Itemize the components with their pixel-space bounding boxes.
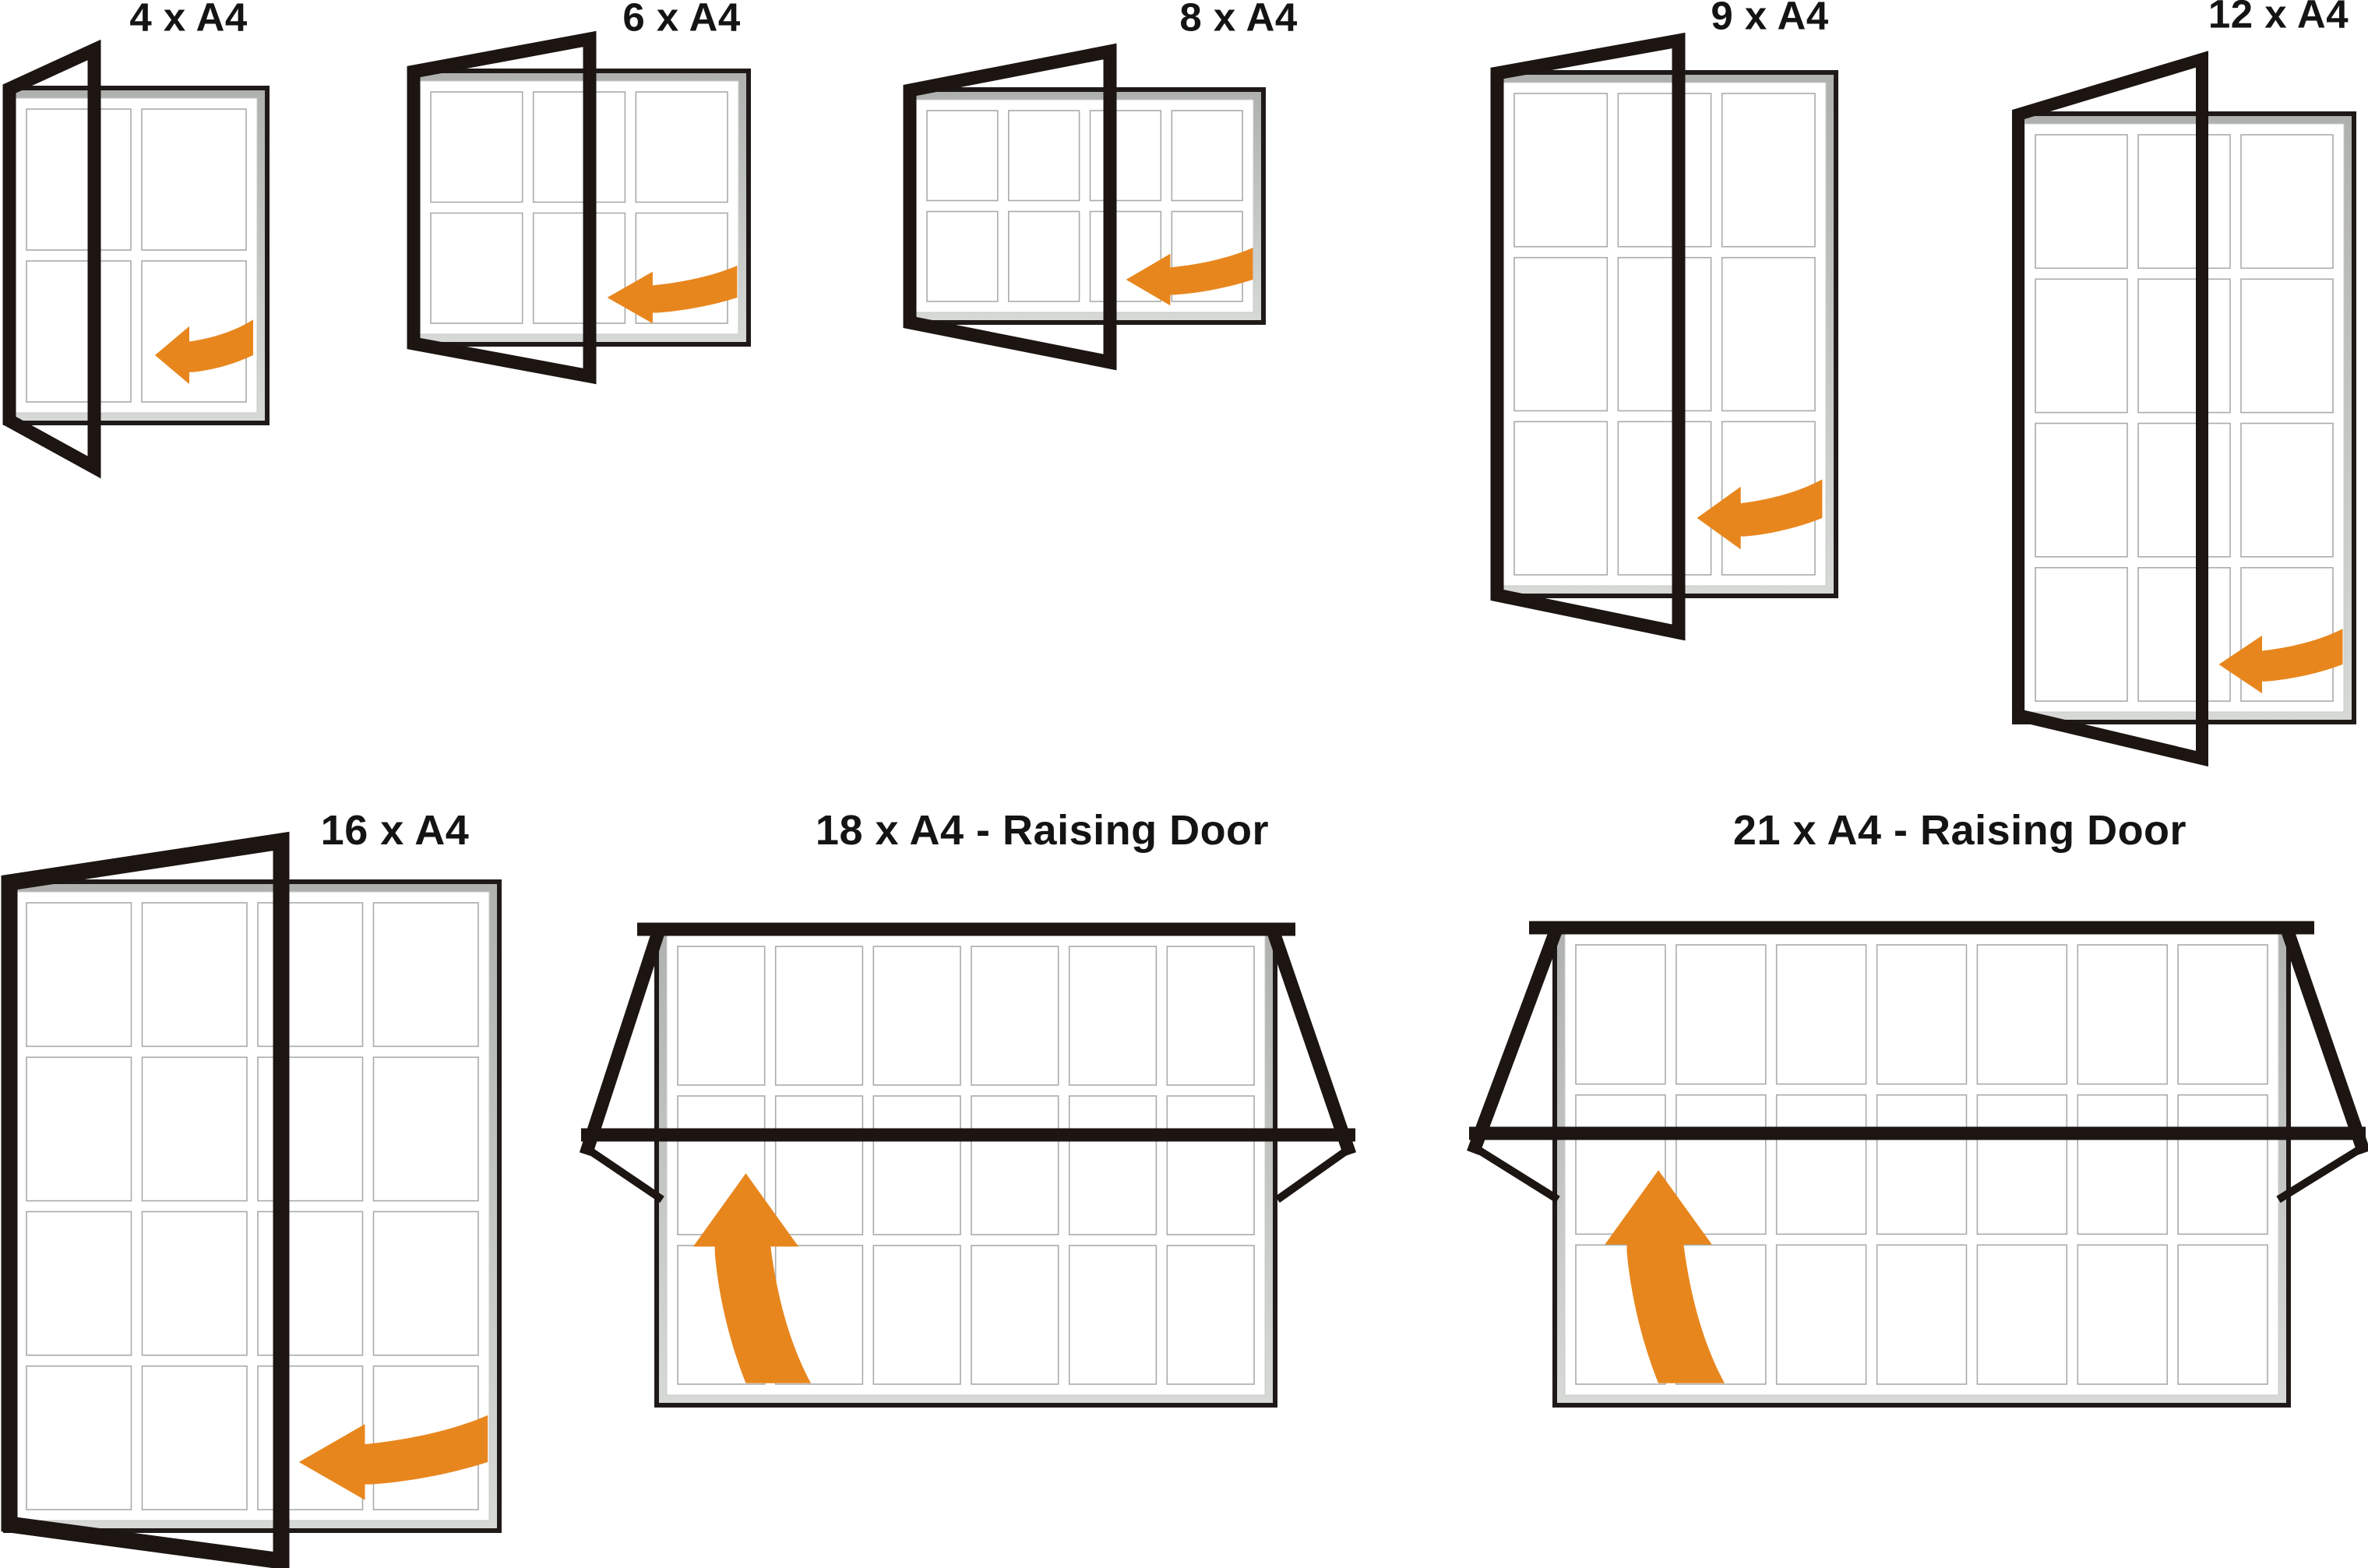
a4-sheet — [2035, 135, 2127, 268]
a4-sheet — [1977, 1245, 2067, 1384]
a4-sheet — [971, 1096, 1059, 1235]
a4-sheet — [1069, 1246, 1157, 1384]
figure-label: 12 x A4 — [2208, 0, 2349, 37]
a4-sheet — [1514, 93, 1607, 247]
a4-sheet — [2138, 279, 2230, 412]
a4-sheet — [143, 1212, 248, 1355]
unit-9-x-a4: 9 x A4 — [1491, 0, 1838, 632]
a4-sheet — [927, 212, 998, 302]
a4-sheet — [431, 92, 523, 203]
a4-sheet — [873, 1096, 960, 1235]
a4-sheet — [143, 1366, 248, 1510]
a4-sheet — [431, 213, 523, 324]
a4-sheet — [1167, 946, 1254, 1085]
a4-sheet — [26, 109, 131, 250]
a4-sheet — [1069, 946, 1157, 1085]
a4-sheet — [1676, 945, 1766, 1084]
a4-sheet — [1722, 93, 1815, 247]
a4-sheet — [1167, 1246, 1254, 1384]
a4-sheet — [1618, 93, 1711, 247]
a4-sheet — [26, 903, 132, 1046]
a4-sheet — [2138, 568, 2230, 701]
figure-label: 8 x A4 — [1179, 0, 1298, 40]
a4-sheet — [2178, 1095, 2268, 1235]
a4-sheet — [1009, 212, 1080, 302]
a4-sheet — [26, 261, 131, 402]
a4-sheet — [927, 111, 998, 201]
a4-sheet — [374, 1057, 479, 1200]
a4-sheet — [2077, 1095, 2167, 1235]
a4-sheet — [2035, 279, 2127, 412]
a4-sheet — [1009, 111, 1080, 201]
figure-label: 18 x A4 - Raising Door — [816, 807, 1269, 854]
a4-sheet — [2035, 424, 2127, 557]
a4-sheet — [776, 1096, 863, 1235]
a4-sheet — [873, 946, 960, 1085]
a4-sheet — [374, 903, 479, 1046]
a4-sheet — [1618, 258, 1711, 411]
a4-sheet — [2241, 135, 2333, 268]
a4-sheet — [2035, 568, 2127, 701]
a4-sheet — [26, 1057, 132, 1200]
a4-sheet — [26, 1366, 132, 1510]
a4-sheet — [1777, 945, 1866, 1084]
a4-sheet — [1576, 945, 1665, 1084]
a4-sheet — [1777, 1245, 1866, 1384]
a4-sheet — [143, 903, 248, 1046]
a4-sheet — [2077, 945, 2167, 1084]
a4-sheet — [1618, 421, 1711, 575]
a4-sheet — [636, 92, 728, 203]
a4-sheet — [1172, 111, 1242, 201]
figure-label: 9 x A4 — [1711, 0, 1829, 38]
a4-sheet — [1977, 1095, 2067, 1235]
a4-sheet — [2138, 135, 2230, 268]
a4-sheet — [1091, 111, 1161, 201]
a4-sheet — [1676, 1095, 1766, 1235]
figure-label: 4 x A4 — [129, 0, 248, 40]
a4-sheet — [1877, 1095, 1967, 1235]
a4-sheet — [1877, 945, 1967, 1084]
a4-sheet — [2241, 279, 2333, 412]
a4-sheet — [1777, 1095, 1866, 1235]
figure-label: 16 x A4 — [321, 807, 470, 854]
a4-sheet — [534, 213, 625, 324]
a4-sheet — [971, 1246, 1059, 1384]
a4-sheet — [374, 1212, 479, 1355]
a4-sheet — [2241, 424, 2333, 557]
a4-sheet — [26, 1212, 132, 1355]
diagram-root: 4 x A46 x A48 x A49 x A412 x A416 x A418… — [0, 0, 2368, 1568]
a4-sheet — [1514, 258, 1607, 411]
a4-sheet — [1722, 258, 1815, 411]
figure-label: 6 x A4 — [622, 0, 741, 40]
a4-sheet — [971, 946, 1059, 1085]
a4-sheet — [1514, 421, 1607, 575]
a4-sheet — [873, 1246, 960, 1384]
a4-sheet — [2178, 945, 2268, 1084]
unit-16-x-a4: 16 x A4 — [3, 807, 502, 1561]
a4-sheet — [2138, 424, 2230, 557]
a4-sheet — [2077, 1245, 2167, 1384]
a4-sheet — [776, 946, 863, 1085]
a4-sheet — [1069, 1096, 1157, 1235]
a4-sheet — [1167, 1096, 1254, 1235]
a4-sheet — [1977, 945, 2067, 1084]
notice-board-diagram: 4 x A46 x A48 x A49 x A412 x A416 x A418… — [0, 0, 2368, 1568]
a4-sheet — [142, 109, 246, 250]
unit-12-x-a4: 12 x A4 — [2012, 0, 2356, 759]
figure-label: 21 x A4 - Raising Door — [1733, 807, 2187, 854]
a4-sheet — [2178, 1245, 2268, 1384]
a4-sheet — [678, 946, 765, 1085]
a4-sheet — [1877, 1245, 1967, 1384]
a4-sheet — [143, 1057, 248, 1200]
a4-sheet — [534, 92, 625, 203]
